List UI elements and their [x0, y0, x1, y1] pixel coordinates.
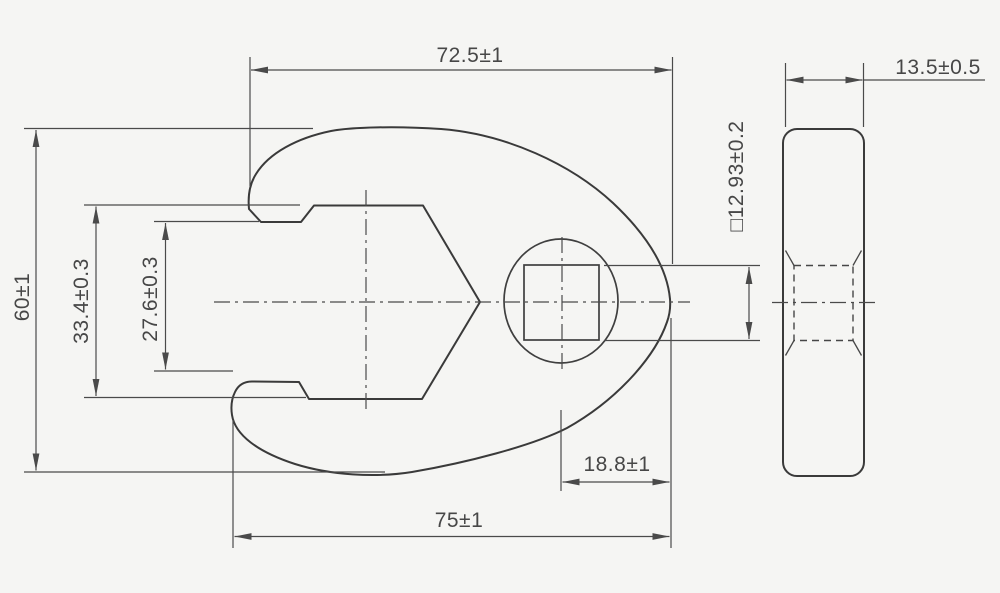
dim-jaw-opening: 27.6±0.3 — [139, 222, 259, 372]
dim-drive-offset-label: 18.8±1 — [583, 453, 650, 476]
dim-jaw-outer: 33.4±0.3 — [70, 205, 306, 398]
dim-square-drive-label: □12.93±0.2 — [725, 121, 748, 232]
front-view — [214, 127, 690, 475]
dim-overall-height: 60±1 — [11, 129, 385, 473]
dim-top-width: 72.5±1 — [250, 44, 673, 264]
dim-jaw-outer-label: 33.4±0.3 — [70, 258, 93, 344]
dim-bottom-width: 75±1 — [233, 318, 671, 548]
dim-square-drive: □12.93±0.2 — [604, 121, 760, 341]
dim-top-width-label: 72.5±1 — [436, 44, 503, 67]
socket-chamfer-top-right — [853, 251, 862, 266]
technical-drawing-canvas: 72.5±1 60±1 33.4±0.3 27.6±0.3 □12.93±0.2… — [0, 0, 1000, 593]
dim-thickness-label: 13.5±0.5 — [895, 56, 981, 79]
dim-overall-height-label: 60±1 — [11, 273, 34, 322]
side-view — [772, 129, 876, 476]
dim-jaw-opening-label: 27.6±0.3 — [139, 256, 162, 342]
wrench-outline — [231, 127, 670, 475]
dim-bottom-width-label: 75±1 — [435, 509, 484, 532]
socket-chamfer-bottom-left — [786, 341, 795, 356]
drawing-sheet: 72.5±1 60±1 33.4±0.3 27.6±0.3 □12.93±0.2… — [0, 0, 1000, 593]
drive-bore-circle — [504, 239, 618, 363]
dim-thickness: 13.5±0.5 — [786, 56, 986, 127]
socket-chamfer-bottom-right — [853, 341, 862, 356]
socket-chamfer-top-left — [786, 251, 795, 266]
